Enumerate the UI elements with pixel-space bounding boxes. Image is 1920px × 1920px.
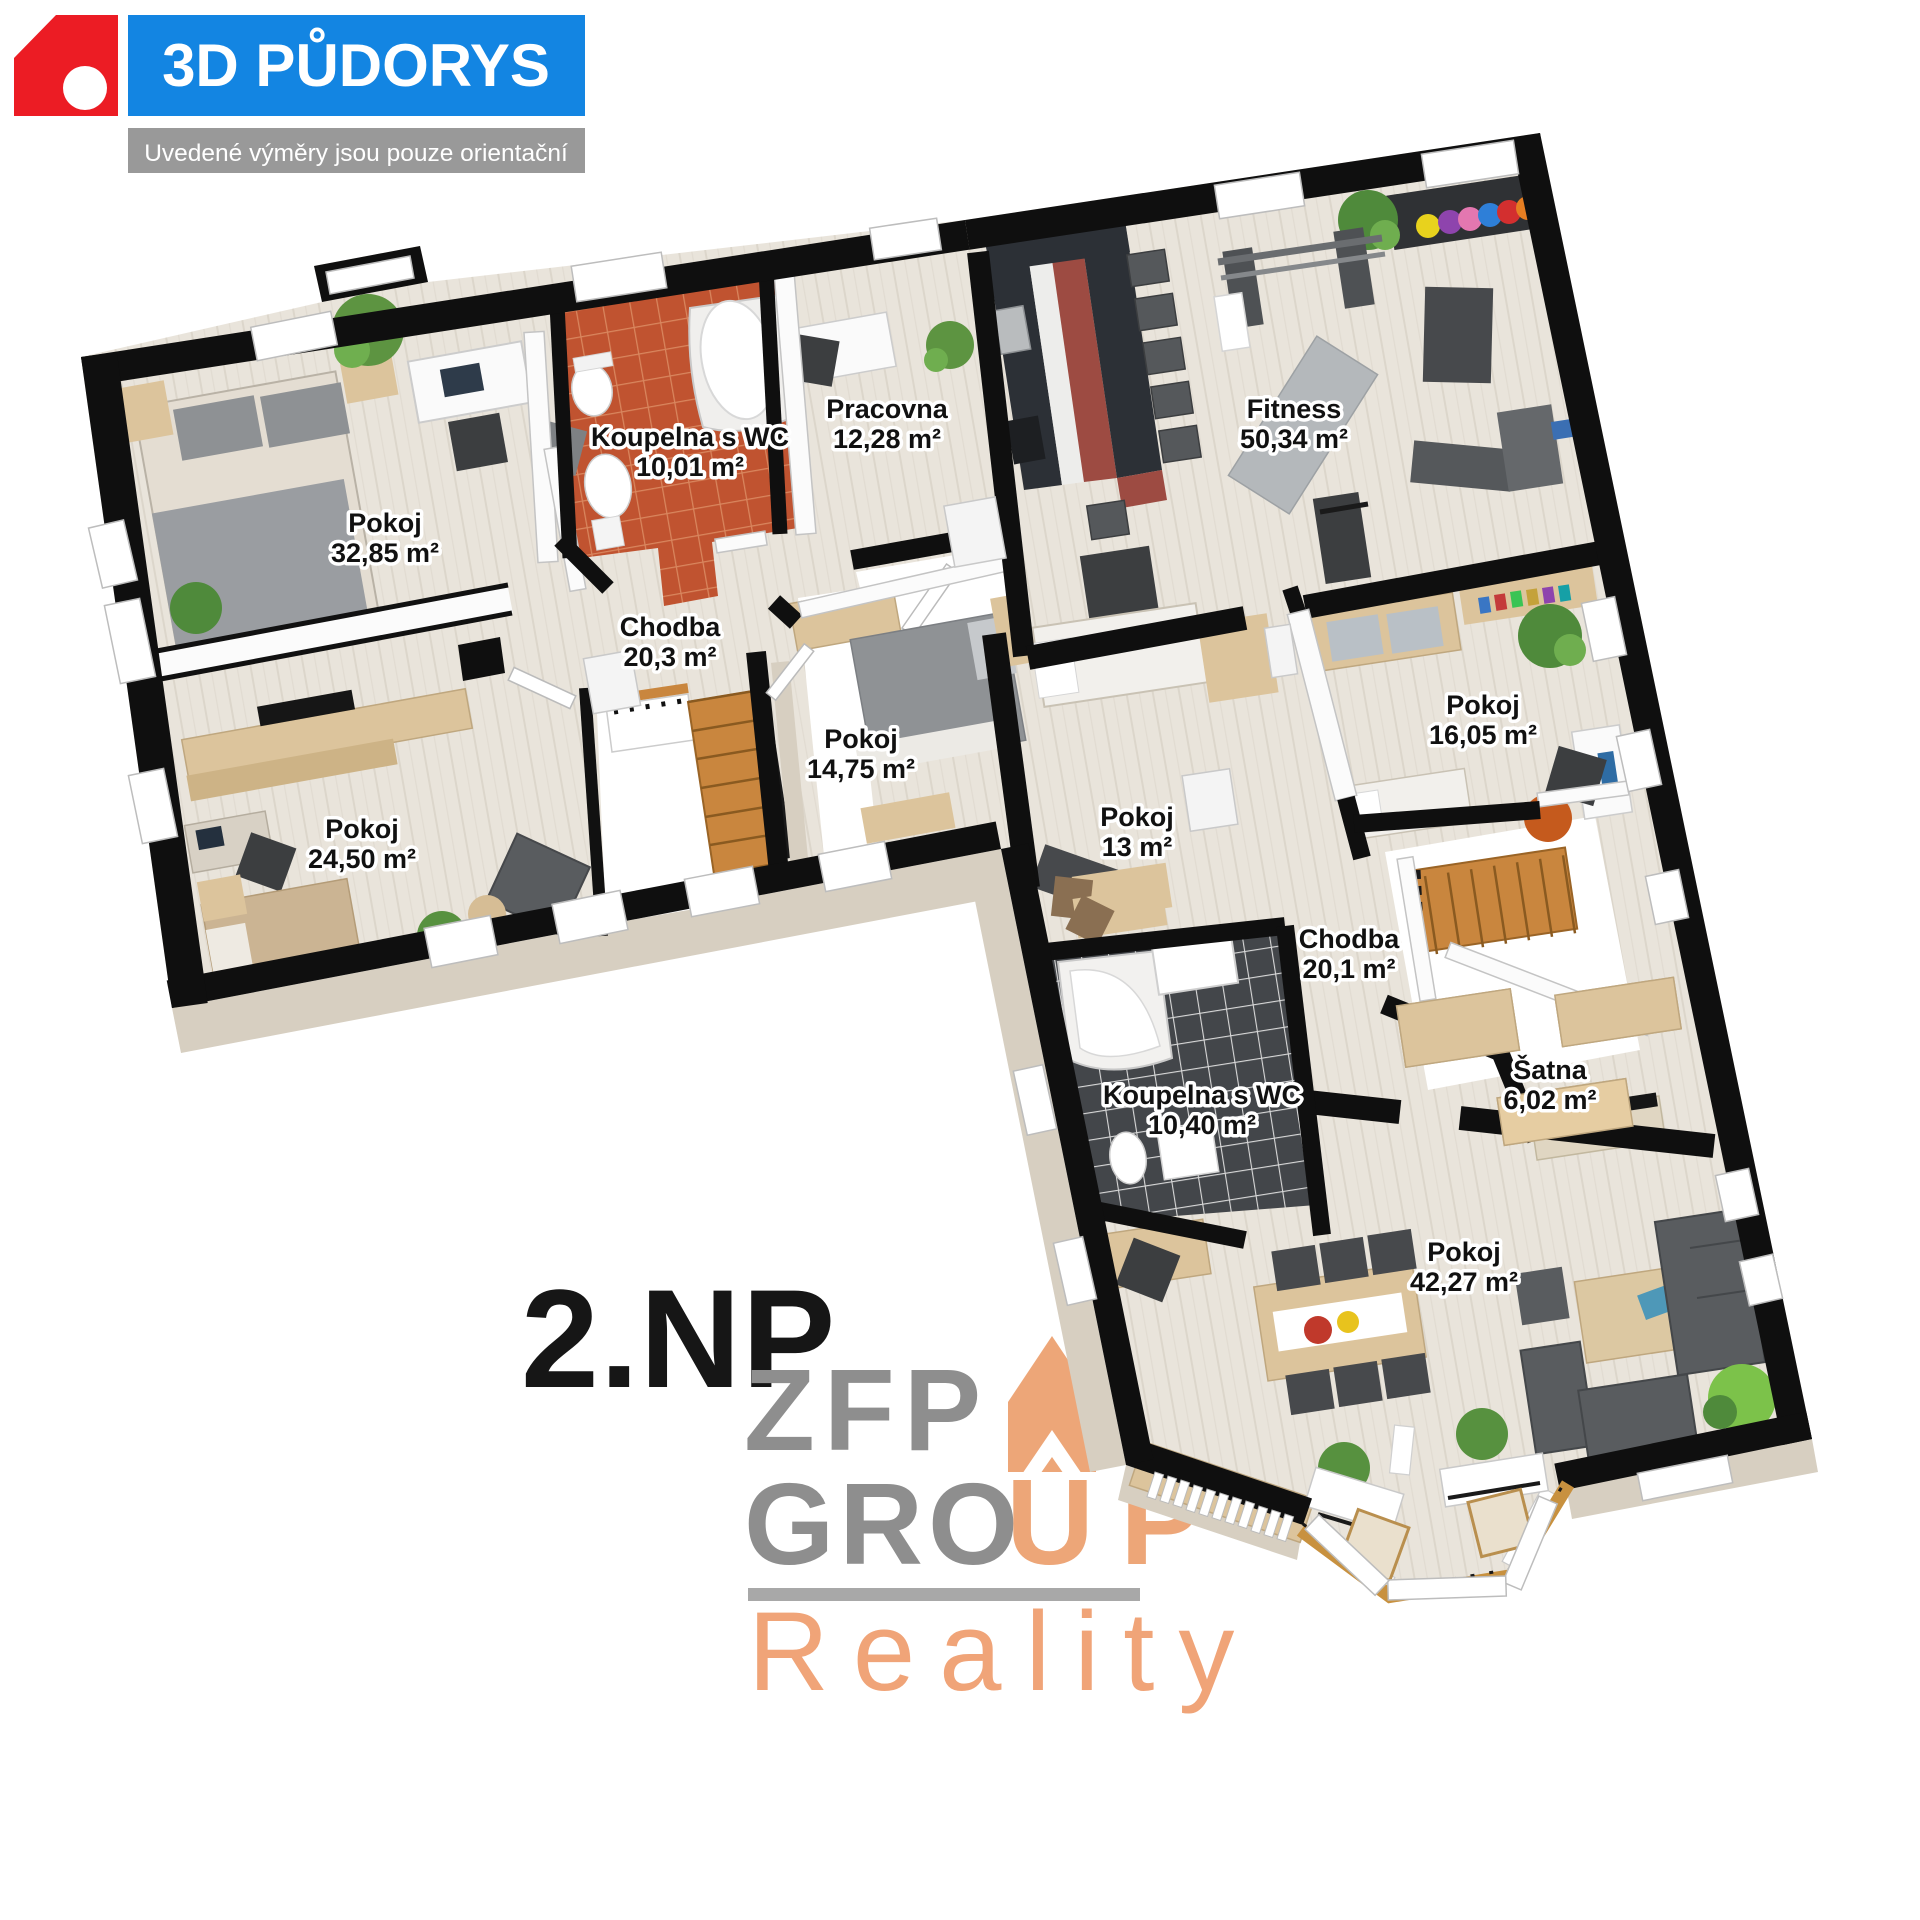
svg-text:32,85 m²: 32,85 m² [331, 538, 439, 568]
svg-text:Pokoj: Pokoj [348, 508, 422, 538]
svg-text:Pokoj: Pokoj [325, 814, 399, 844]
svg-text:3D PŮDORYS: 3D PŮDORYS [162, 28, 550, 99]
svg-text:24,50 m²: 24,50 m² [308, 844, 416, 874]
svg-text:Uvedené výměry jsou pouze orie: Uvedené výměry jsou pouze orientační [144, 140, 568, 167]
svg-text:10,01 m²: 10,01 m² [636, 452, 744, 482]
svg-text:20,3 m²: 20,3 m² [623, 642, 716, 672]
svg-text:ZFP: ZFP [744, 1345, 990, 1475]
svg-text:10,40 m²: 10,40 m² [1148, 1110, 1256, 1140]
svg-text:Reality: Reality [748, 1589, 1258, 1714]
svg-text:Koupelna s WC: Koupelna s WC [591, 422, 789, 452]
svg-text:12,28 m²: 12,28 m² [833, 424, 941, 454]
svg-text:6,02 m²: 6,02 m² [1503, 1085, 1596, 1115]
svg-text:GRO: GRO [744, 1459, 1023, 1589]
svg-text:Pokoj: Pokoj [1427, 1237, 1501, 1267]
svg-text:Pokoj: Pokoj [1100, 802, 1174, 832]
svg-text:Koupelna s WC: Koupelna s WC [1103, 1080, 1301, 1110]
svg-text:50,34 m²: 50,34 m² [1240, 424, 1348, 454]
svg-text:Pracovna: Pracovna [826, 394, 949, 424]
svg-text:Šatna: Šatna [1513, 1054, 1588, 1085]
svg-text:Pokoj: Pokoj [1446, 690, 1520, 720]
svg-text:Fitness: Fitness [1247, 394, 1342, 424]
svg-text:14,75 m²: 14,75 m² [807, 754, 915, 784]
svg-text:Pokoj: Pokoj [824, 724, 898, 754]
svg-text:42,27 m²: 42,27 m² [1410, 1267, 1518, 1297]
svg-text:Chodba: Chodba [1299, 924, 1400, 954]
svg-text:16,05 m²: 16,05 m² [1429, 720, 1537, 750]
svg-text:13 m²: 13 m² [1102, 832, 1173, 862]
svg-text:20,1 m²: 20,1 m² [1302, 954, 1395, 984]
svg-text:Chodba: Chodba [620, 612, 721, 642]
